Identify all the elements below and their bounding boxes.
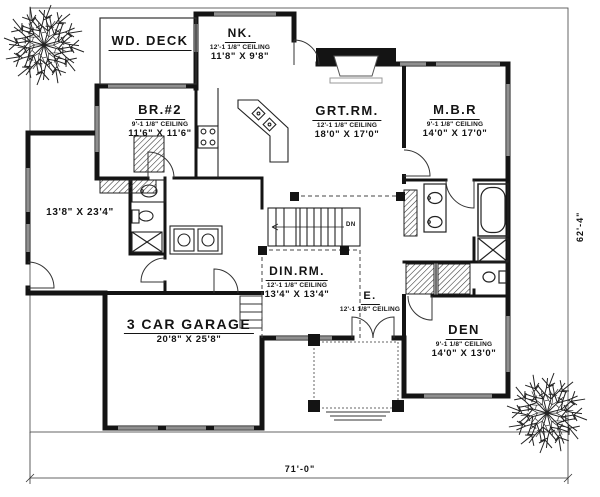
floor-plan-drawing bbox=[0, 0, 600, 497]
laundry-fixtures bbox=[170, 226, 222, 254]
wood-deck-outline bbox=[100, 18, 196, 84]
room-name: GRT.RM. bbox=[312, 104, 381, 121]
room-size: 18'0" X 17'0" bbox=[312, 130, 381, 141]
overall-height-dimension: 62'-4" bbox=[575, 212, 585, 242]
room-label-entry: E. 12'-1 1/8" CEILING bbox=[340, 286, 400, 313]
tree-icon bbox=[0, 0, 89, 89]
room-size: 13'4" X 13'4" bbox=[265, 290, 330, 301]
room-size: 11'6" X 11'6" bbox=[128, 129, 192, 140]
room-label-left-room: 13'8" X 23'4" bbox=[46, 206, 114, 219]
ceiling-height: 9'-1 1/8" CEILING bbox=[128, 121, 192, 128]
room-label-dining-room: DIN.RM. 12'-1 1/8" CEILING 13'4" X 13'4" bbox=[265, 262, 330, 301]
room-size: 11'8" X 9'8" bbox=[210, 52, 270, 63]
room-name: M.B.R bbox=[430, 103, 480, 120]
room-label-great-room: GRT.RM. 12'-1 1/8" CEILING 18'0" X 17'0" bbox=[312, 102, 381, 141]
room-label-wood-deck: WD. DECK bbox=[109, 32, 192, 51]
room-name: WD. DECK bbox=[109, 34, 192, 51]
dimension-lines bbox=[26, 432, 572, 484]
tree-icon bbox=[502, 368, 591, 457]
stairs-direction-label: DN bbox=[346, 222, 356, 228]
room-label-garage: 3 CAR GARAGE 20'8" X 25'8" bbox=[124, 316, 254, 346]
room-name: E. bbox=[360, 290, 379, 305]
room-size: 13'8" X 23'4" bbox=[46, 207, 114, 219]
kitchen-fixtures bbox=[198, 88, 288, 178]
room-label-master-bedroom: M.B.R 9'-1 1/8" CEILING 14'0" X 17'0" bbox=[423, 101, 488, 140]
room-label-den: DEN 9'-1 1/8" CEILING 14'0" X 13'0" bbox=[432, 321, 497, 360]
ceiling-height: 12'-1 1/8" CEILING bbox=[265, 282, 330, 289]
room-name: DIN.RM. bbox=[266, 265, 328, 281]
entry-porch bbox=[308, 334, 404, 420]
room-name: DEN bbox=[445, 323, 483, 340]
ceiling-height: 9'-1 1/8" CEILING bbox=[432, 341, 497, 348]
room-size: 14'0" X 13'0" bbox=[432, 349, 497, 360]
property-line bbox=[30, 8, 568, 432]
room-name: 3 CAR GARAGE bbox=[124, 316, 254, 334]
ceiling-height: 12'-1 1/8" CEILING bbox=[340, 306, 400, 313]
room-label-nook: NK. 12'-1 1/8" CEILING 11'8" X 9'8" bbox=[210, 24, 270, 63]
ceiling-height: 9'-1 1/8" CEILING bbox=[423, 121, 488, 128]
room-name: NK. bbox=[225, 27, 256, 43]
ceiling-height: 12'-1 1/8" CEILING bbox=[312, 122, 381, 129]
ceiling-height: 12'-1 1/8" CEILING bbox=[210, 44, 270, 51]
room-name: BR.#2 bbox=[135, 103, 185, 120]
fireplace bbox=[316, 48, 396, 83]
room-size: 20'8" X 25'8" bbox=[124, 335, 254, 346]
floor-plan-canvas: WD. DECK NK. 12'-1 1/8" CEILING 11'8" X … bbox=[0, 0, 600, 497]
overall-width-dimension: 71'-0" bbox=[285, 464, 315, 474]
room-size: 14'0" X 17'0" bbox=[423, 129, 488, 140]
room-label-bedroom2: BR.#2 9'-1 1/8" CEILING 11'6" X 11'6" bbox=[128, 101, 192, 140]
